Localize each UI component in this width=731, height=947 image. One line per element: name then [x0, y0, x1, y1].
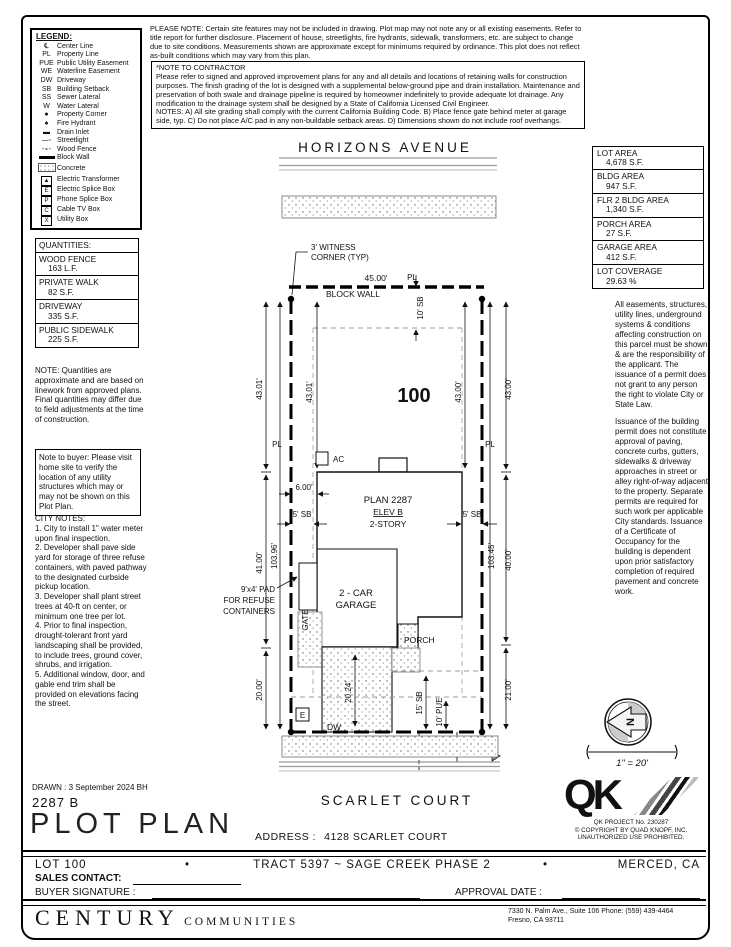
front-walk — [392, 648, 420, 672]
disclaimer-p2: Issuance of the building permit does not… — [615, 417, 708, 597]
builder-logo: CENTURY COMMUNITIES — [35, 905, 298, 931]
disclaimer-p1: All easements, structures, utility lines… — [615, 300, 708, 410]
setback-icon: SB — [36, 86, 57, 95]
lot-coverage-cell: LOT COVERAGE29.63 % — [592, 264, 704, 289]
builder-name: CENTURY — [35, 905, 180, 930]
sidewalk-bottom — [282, 736, 498, 757]
contractor-note-body: Please refer to signed and approved impr… — [156, 73, 580, 109]
private-walk-cell: PRIVATE WALK82 S.F. — [35, 275, 139, 300]
north-letter: N — [625, 718, 637, 726]
fire-hydrant-icon: ♠ — [36, 120, 57, 129]
lot-number: 100 — [397, 385, 430, 407]
elev-label: ELEV B — [373, 507, 403, 517]
porch-area-cell: PORCH AREA27 S.F. — [592, 217, 704, 242]
ac-pad — [316, 452, 328, 465]
witness-corner-label: 3' WITNESS — [311, 243, 356, 252]
legend-title: LEGEND: — [36, 33, 136, 42]
property-line-icon: PL — [36, 51, 57, 60]
refuse-label2: FOR REFUSE — [223, 596, 275, 605]
wood-fence-icon: -∘- — [36, 146, 57, 155]
porch-label: PORCH — [404, 635, 435, 645]
property-corner-sw — [288, 729, 294, 735]
right-disclaimer: All easements, structures, utility lines… — [615, 300, 708, 604]
driveway-cell: DRIVEWAY335 S.F. — [35, 299, 139, 324]
area-summary: LOT AREA4,678 S.F. BLDG AREA947 S.F. FLR… — [592, 147, 704, 289]
lot-area-cell: LOT AREA4,678 S.F. — [592, 146, 704, 171]
dim-left-inner: 43.01' — [305, 381, 314, 403]
water-lateral-icon: W — [36, 103, 57, 112]
dim-sb-left: 5' SB — [293, 510, 312, 519]
dim-left-depth: 103.96' — [270, 543, 279, 569]
sheet-title: PLOT PLAN — [30, 808, 234, 841]
block-wall-icon — [36, 154, 57, 163]
footer-tract: TRACT 5397 ~ SAGE CREEK PHASE 2 — [222, 859, 522, 871]
qk-unauthorized: UNAUTHORIZED USE PROHIBITED. — [556, 834, 706, 842]
street-bottom-lines — [279, 762, 500, 771]
address-line: ADDRESS :4128 SCARLET COURT — [255, 831, 456, 843]
electric-splice-label: E — [300, 711, 305, 720]
address-label: ADDRESS : — [255, 831, 316, 843]
electric-transformer-icon: ▲ — [36, 176, 57, 186]
property-corner-icon: ● — [36, 111, 57, 120]
city-notes-title: CITY NOTES: — [35, 514, 148, 524]
property-line-mark-west: PL — [272, 440, 282, 449]
witness-corner-label2: CORNER (TYP) — [311, 253, 369, 262]
wood-fence-cell: WOOD FENCE163 L.F. — [35, 252, 139, 277]
builder-office: 7330 N. Palm Ave., Suite 106 Phone: (559… — [508, 907, 673, 925]
dim-drive-len: 20.24' — [344, 681, 353, 703]
please-note: PLEASE NOTE: Certain site features may n… — [150, 25, 587, 61]
city-notes-body: 1. City to install 1" water meter upon f… — [35, 524, 148, 709]
quantities-note: NOTE: Quantities are approximate and are… — [35, 366, 145, 425]
centerline-icon: ℄ — [36, 43, 57, 52]
footer-bullet-1: • — [185, 859, 189, 871]
dim-left-c: 20.00' — [255, 679, 264, 701]
dim-right-b: 40.00' — [504, 549, 513, 571]
dim-left-b: 41.00' — [255, 552, 264, 574]
bldg-area-cell: BLDG AREA947 S.F. — [592, 169, 704, 194]
street-top-label: HORIZONS AVENUE — [298, 140, 472, 155]
electric-splice-icon: E — [36, 186, 57, 196]
north-arrow: N — [605, 699, 651, 745]
dim-rear-sb: 15' SB — [415, 691, 424, 714]
office-line1: 7330 N. Palm Ave., Suite 106 Phone: (559… — [508, 907, 673, 916]
address-value: 4128 SCARLET COURT — [324, 831, 448, 843]
block-wall-label: BLOCK WALL — [326, 289, 380, 299]
concrete-icon — [36, 163, 57, 176]
footer-lot: LOT 100 — [35, 859, 87, 871]
story-label: 2-STORY — [370, 519, 407, 529]
legend-box: LEGEND: ℄Center Line PLProperty Line PUE… — [30, 28, 142, 230]
dim-sb-right: 5' SB — [463, 510, 482, 519]
qk-logo: QK — [556, 775, 706, 819]
scale-label: 1" = 20' — [616, 758, 649, 769]
contractor-note-list: NOTES: A) All site grading shall comply … — [156, 108, 580, 126]
sales-contact-blank — [133, 883, 241, 885]
qk-project: QK PROJECT No. 230287 — [556, 819, 706, 827]
phone-splice-icon: P — [36, 196, 57, 206]
qk-stripes-icon — [634, 777, 700, 815]
dim-front-width: 45.00' — [365, 273, 388, 283]
street-bottom-label: SCARLET COURT — [321, 793, 474, 808]
drawn-line: DRAWN : 3 September 2024 BH — [32, 783, 148, 792]
flr2-area-cell: FLR 2 BLDG AREA1,340 S.F. — [592, 193, 704, 218]
buyer-note-box: Note to buyer: Please visit home site to… — [35, 449, 141, 516]
drain-inlet-icon: ▬ — [36, 129, 57, 138]
dim-right-depth: 103.45' — [487, 543, 496, 569]
dim-left-a: 43.01' — [255, 378, 264, 400]
street-top-lines — [279, 158, 497, 170]
footer-rule-top — [21, 850, 706, 857]
qk-logo-text: QK — [564, 771, 619, 818]
office-line2: Fresno, CA 93711 — [508, 916, 673, 925]
qk-logo-block: QK QK PROJECT No. 230287 © COPYRIGHT BY … — [556, 775, 706, 842]
public-sidewalk-cell: PUBLIC SIDEWALK225 S.F. — [35, 323, 139, 348]
dim-side-gap: 6.00' — [295, 483, 313, 492]
ac-label: AC — [333, 455, 344, 464]
dim-pue: 10' PUE — [435, 697, 444, 726]
dim-right-c: 21.00' — [504, 679, 513, 701]
sidewalk-top — [282, 196, 496, 218]
driveway — [322, 647, 392, 732]
refuse-label1: 9'x4' PAD — [241, 585, 275, 594]
garage-label2: GARAGE — [336, 600, 377, 611]
footer-city: MERCED, CA — [600, 859, 700, 871]
approval-date-label: APPROVAL DATE : — [455, 887, 542, 898]
builder-sub: COMMUNITIES — [184, 916, 298, 928]
buyer-signature-label: BUYER SIGNATURE : — [35, 887, 135, 898]
house-bay — [379, 458, 407, 472]
dim-front-sb: 10' SB — [416, 296, 425, 319]
footer-bullet-2: • — [543, 859, 547, 871]
property-corner-se — [479, 729, 485, 735]
dim-right-a: 43.00' — [504, 378, 513, 400]
dim-right-inner: 43.00' — [454, 381, 463, 403]
refuse-pad — [299, 563, 317, 610]
city-notes: CITY NOTES: 1. City to install 1" water … — [35, 514, 148, 709]
waterline-easement-icon: WE — [36, 68, 57, 77]
sales-contact-label: SALES CONTACT: — [35, 873, 121, 884]
scale-bar — [587, 745, 677, 759]
plot-plan-sheet: HORIZONS AVENUE 3' WITNESS CORNER (TYP) … — [0, 0, 731, 947]
cable-tv-icon: C — [36, 206, 57, 216]
plan-label: PLAN 2287 — [364, 495, 413, 506]
sewer-lateral-icon: SS — [36, 94, 57, 103]
quantities-box: QUANTITIES: WOOD FENCE163 L.F. PRIVATE W… — [35, 239, 139, 348]
refuse-label3: CONTAINERS — [223, 607, 275, 616]
qk-copyright: © COPYRIGHT BY QUAD KNOPF, INC. — [556, 827, 706, 835]
driveway-icon: DW — [36, 77, 57, 86]
contractor-note-box: *NOTE TO CONTRACTOR Please refer to sign… — [151, 61, 585, 129]
streetlight-icon: —◦ — [36, 137, 57, 146]
utility-box-icon: X — [36, 216, 57, 226]
pue-icon: PUE — [36, 60, 57, 69]
garage-label1: 2 - CAR — [339, 588, 373, 599]
gate-label: GATE — [301, 609, 310, 630]
garage-area-cell: GARAGE AREA412 S.F. — [592, 240, 704, 265]
